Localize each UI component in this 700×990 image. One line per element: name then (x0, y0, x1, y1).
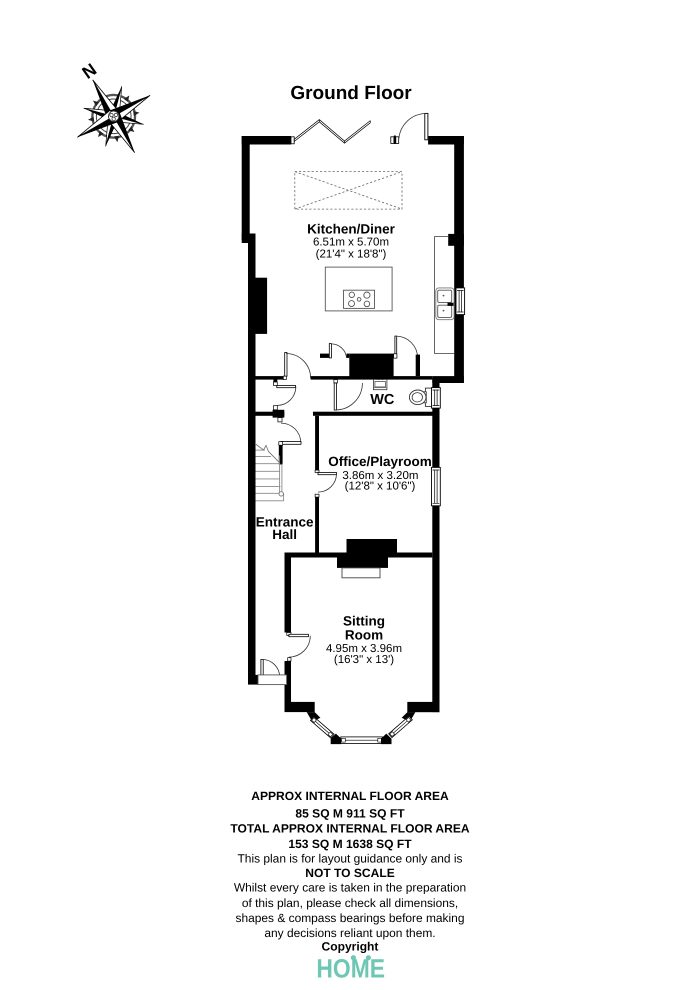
svg-text:of this plan, please check all: of this plan, please check all dimension… (242, 896, 458, 910)
svg-text:(16'3" x 13'): (16'3" x 13') (334, 654, 394, 666)
svg-text:Copyright: Copyright (322, 940, 379, 954)
svg-text:This plan is for layout guidan: This plan is for layout guidance only an… (238, 851, 463, 865)
svg-text:Whilst every care is taken in: Whilst every care is taken in the prepar… (234, 880, 466, 894)
svg-text:HOME: HOME (316, 953, 385, 983)
svg-text:(12'8" x 10'6"): (12'8" x 10'6") (345, 481, 416, 493)
svg-text:6.51m x 5.70m: 6.51m x 5.70m (313, 237, 389, 249)
svg-text:Kitchen/Diner: Kitchen/Diner (307, 221, 396, 236)
svg-text:APPROX INTERNAL FLOOR AREA: APPROX INTERNAL FLOOR AREA (251, 789, 449, 803)
svg-text:TOTAL APPROX INTERNAL FLOOR AR: TOTAL APPROX INTERNAL FLOOR AREA (230, 822, 469, 836)
svg-text:Room: Room (345, 628, 383, 643)
svg-text:Hall: Hall (272, 527, 297, 542)
svg-text:85 SQ M 911 SQ FT: 85 SQ M 911 SQ FT (295, 807, 405, 821)
svg-text:153 SQ M 1638 SQ FT: 153 SQ M 1638 SQ FT (288, 837, 412, 851)
svg-text:shapes & compass bearings befo: shapes & compass bearings before making (236, 911, 465, 925)
svg-text:NOT TO SCALE: NOT TO SCALE (305, 866, 394, 880)
svg-text:N: N (78, 59, 100, 83)
svg-text:(21'4" x 18'8"): (21'4" x 18'8") (316, 248, 387, 260)
svg-text:any decisions reliant upon the: any decisions reliant upon them. (264, 926, 435, 940)
svg-text:Office/Playroom: Office/Playroom (328, 454, 432, 469)
svg-text:4.95m x 3.96m: 4.95m x 3.96m (326, 643, 402, 655)
svg-text:WC: WC (370, 392, 395, 408)
svg-text:Sitting: Sitting (343, 613, 385, 628)
svg-text:Ground Floor: Ground Floor (290, 83, 412, 104)
